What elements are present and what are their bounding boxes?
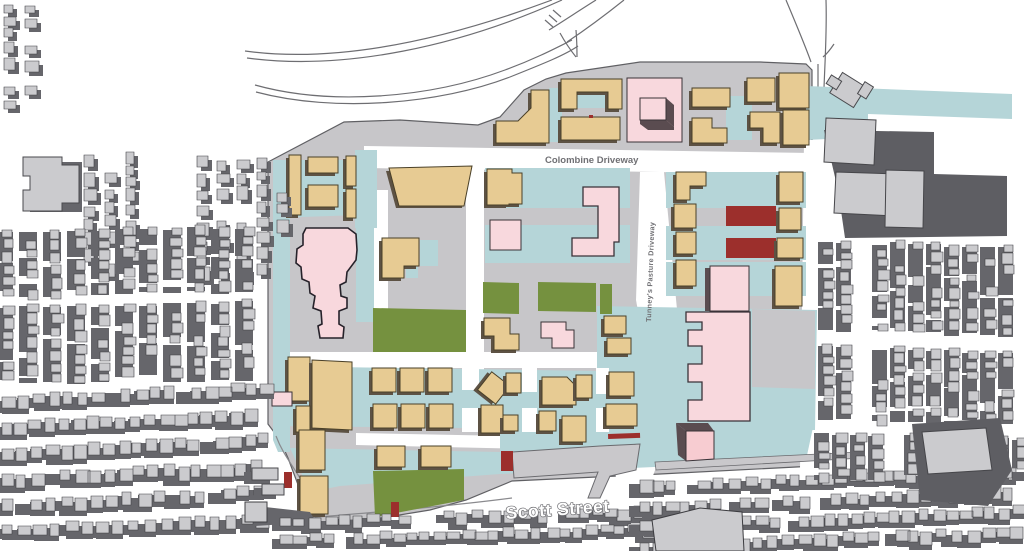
svg-text:Colombine Driveway: Colombine Driveway bbox=[545, 155, 639, 166]
